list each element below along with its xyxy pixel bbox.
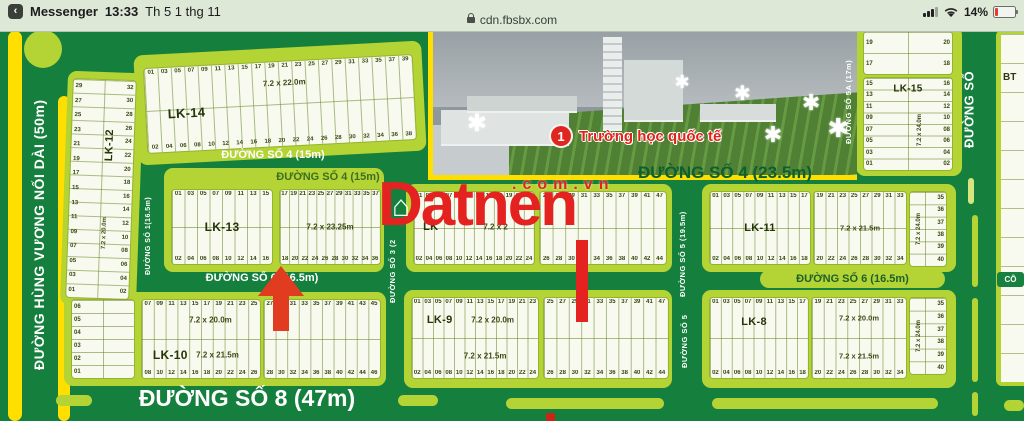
street-label-so5a: ĐƯỜNG SỐ 5A (17m) bbox=[842, 36, 855, 168]
status-bar: ‹ Messenger 13:33 Th 5 1 thg 11 cdn.fbsb… bbox=[0, 0, 1024, 32]
land-plot-map: 0103050709111315171921232527293133353739… bbox=[0, 0, 1024, 421]
arrow-stem bbox=[273, 295, 289, 331]
wifi-icon bbox=[943, 6, 959, 18]
url-text: cdn.fbsbx.com bbox=[480, 13, 557, 27]
street-label-so4-15-road: ĐƯỜNG SỐ 4 (15m) bbox=[178, 149, 368, 161]
street-labels-layer: ĐƯỜNG HÙNG VƯƠNG NỐI DÀI (50m)ĐƯỜNG SỐ 1… bbox=[0, 0, 1024, 421]
battery-percentage: 14% bbox=[964, 5, 988, 19]
red-arrow-annotation bbox=[258, 266, 304, 332]
lock-icon bbox=[467, 17, 475, 23]
cellular-signal-icon bbox=[923, 7, 938, 17]
address-bar[interactable]: cdn.fbsbx.com bbox=[0, 12, 1024, 27]
street-label-so4-235: ĐƯỜNG SỐ 4 (23.5m) bbox=[545, 163, 905, 183]
street-label-so4-15-block: ĐƯỜNG SỐ 4 (15m) bbox=[238, 171, 418, 183]
street-label-so8: ĐƯỜNG SỐ 8 (47m) bbox=[94, 385, 400, 412]
battery-icon bbox=[993, 6, 1016, 18]
screen: 0103050709111315171921232527293133353739… bbox=[0, 0, 1024, 421]
street-label-so5: ĐƯỜNG SỐ 5 (19.5m) bbox=[676, 198, 689, 310]
street-label-so3: ĐƯỜNG SỐ 3 (2 bbox=[386, 196, 399, 346]
street-label-so-right: ĐƯỜNG SỐ bbox=[958, 40, 980, 178]
street-label-hung-vuong: ĐƯỜNG HÙNG VƯƠNG NỐI DÀI (50m) bbox=[24, 60, 54, 410]
street-label-so6-right: ĐƯỜNG SỐ 6 (16.5m) bbox=[760, 270, 945, 288]
street-label-so5b: ĐƯỜNG SỐ 5 bbox=[678, 302, 691, 380]
status-bar-right: 14% bbox=[923, 5, 1016, 19]
arrow-head bbox=[258, 266, 304, 296]
street-label-so1: ĐƯỜNG SỐ 1(16.5m) bbox=[142, 182, 155, 290]
